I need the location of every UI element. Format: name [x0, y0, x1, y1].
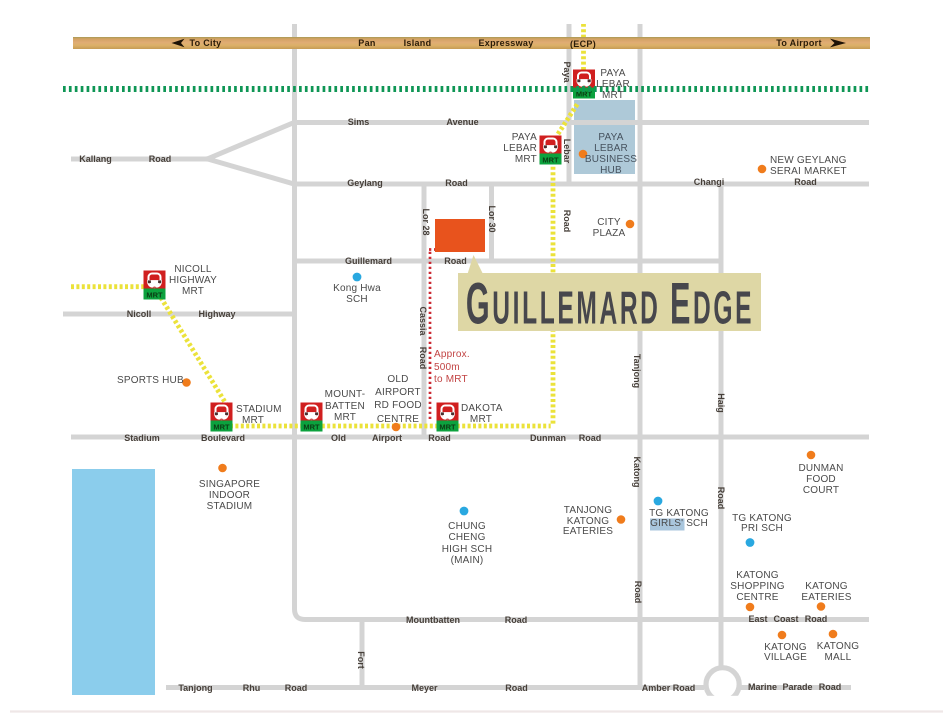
- svg-text:GUILLEMARD EDGE: GUILLEMARD EDGE: [466, 271, 754, 336]
